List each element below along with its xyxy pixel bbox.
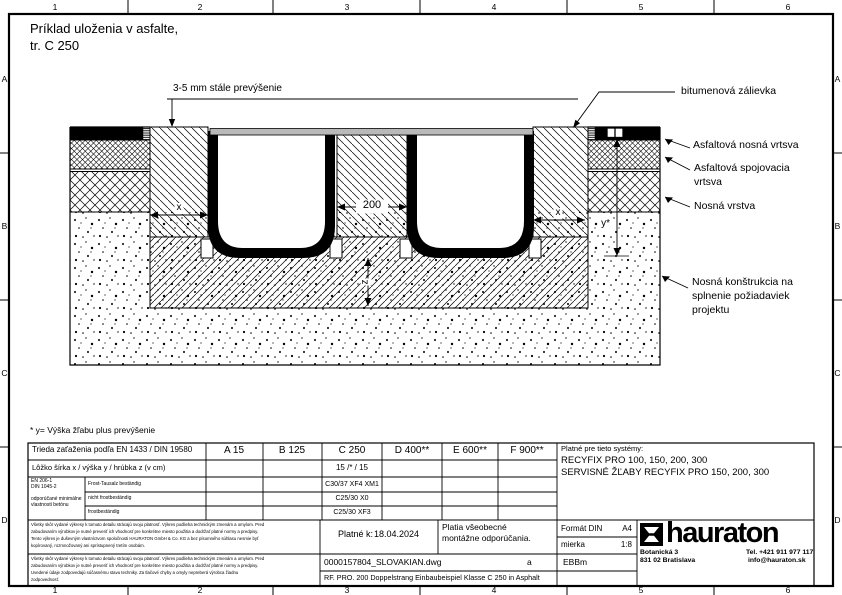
concrete-row-label: Frost-Tausalz beständig — [88, 482, 141, 487]
grid-row-label: B — [835, 221, 841, 231]
grid-row-label: C — [834, 368, 840, 378]
concrete-c250-value: C25/30 X0 — [335, 495, 368, 503]
systems-line2: SERVISNÉ ŽĽABY RECYFIX PRO 150, 200, 300 — [561, 468, 769, 478]
class-e600: E 600** — [453, 446, 487, 457]
label-bitumen-seal: bitumenová zálievka — [681, 86, 776, 97]
hauraton-logo-icon — [640, 523, 663, 546]
label-substructure-line3: projektu — [692, 305, 729, 316]
dim-y-label: y* — [599, 219, 612, 230]
grid-col-label: 3 — [345, 2, 350, 12]
scale-value: 1:8 — [621, 541, 632, 550]
systems-line1: RECYFIX PRO 100, 150, 200, 300 — [561, 456, 707, 466]
label-substructure-line1: Nosná konštrukcia na — [692, 277, 793, 288]
class-b125: B 125 — [279, 446, 305, 457]
valid-date-label: Platné k: — [338, 530, 373, 540]
label-substructure-line2: splnenie požiadaviek — [692, 291, 789, 302]
grid-row-label: A — [2, 74, 8, 84]
grid-row-label: C — [1, 368, 7, 378]
fine-print-line: Uvedené údaje zodpovedajú súčasnému stav… — [31, 571, 238, 576]
page-title-line2: tr. C 250 — [30, 39, 79, 53]
cross-section — [70, 127, 660, 365]
grid-col-label: 2 — [198, 2, 203, 12]
concrete-standard-2: DIN 1045-2 — [31, 485, 57, 490]
page-title-line1: Príklad uloženia v asfalte, — [30, 22, 178, 36]
haunch-middle-hatch — [337, 135, 407, 237]
revision-letter: a — [527, 558, 532, 567]
drawing-description: RF. PRO. 200 Doppelstrang Einbaubeispiel… — [324, 574, 540, 582]
general-note-line1: Platia všeobecné — [442, 523, 507, 532]
concrete-row-label: frostbeständig — [88, 510, 119, 515]
label-asphalt-binder-line2: vrtsva — [694, 177, 722, 188]
label-asphalt-base-course: Asfaltová nosná vrtsva — [693, 140, 799, 151]
pavement-right — [588, 127, 660, 212]
brand-phone: Tel. +421 911 977 117 — [746, 549, 813, 556]
brand-email: info@hauraton.sk — [748, 557, 806, 564]
fine-print-line: zodpovednosť. — [31, 578, 59, 583]
concrete-c250-value: C30/37 XF4 XM1 — [325, 481, 379, 489]
dim-200-label: 200 — [363, 200, 381, 212]
grating-bar — [210, 129, 533, 136]
fine-print-line: kopírovaný, rozmnožovaný ani sprístupnen… — [31, 544, 145, 549]
drawing-sheet: 1 2 3 4 5 6 1 2 3 4 5 6 A B C D A B C D — [0, 0, 842, 595]
fine-print-line: zabudovaním výrobkov je nutné preveriť i… — [31, 530, 258, 535]
concrete-note-2: vlastnosti betónu — [31, 503, 69, 508]
format-label: Formát DIN — [561, 525, 602, 534]
concrete-c250-value: C25/30 XF3 — [333, 509, 370, 517]
haunch-left-hatch — [150, 127, 208, 237]
fine-print-line: Všetky skôr vydané výkresy k tomuto deta… — [31, 523, 264, 528]
grid-col-label: 5 — [639, 2, 644, 12]
brand-address-line1: Botanická 3 — [640, 549, 678, 556]
format-value: A4 — [622, 525, 632, 534]
grid-row-label: D — [1, 515, 7, 525]
fine-print-line: zabudovaním výrobkov je nutné preveriť i… — [31, 564, 258, 569]
class-a15: A 15 — [224, 446, 244, 457]
class-f900: F 900** — [510, 446, 543, 457]
footnote-y-definition: * y= Výška žľabu plus prevýšenie — [30, 426, 155, 435]
fine-print-line: Tento výkres je duševným vlastníctvom sp… — [31, 537, 259, 542]
size-row-label: Lôžko šírka x / výška y / hrúbka z (v cm… — [32, 464, 165, 472]
load-class-row-label: Trieda zaťaženia podľa EN 1433 / DIN 195… — [32, 446, 192, 455]
channel-profile-right — [400, 131, 541, 258]
systems-title: Platné pre tieto systémy: — [561, 445, 643, 453]
class-c250: C 250 — [339, 446, 366, 457]
brand-address-line2: 831 02 Bratislava — [640, 557, 695, 564]
scale-label: mierka — [561, 541, 585, 550]
grid-row-label: A — [835, 74, 841, 84]
general-note-line2: montážne odporúčania. — [442, 534, 531, 543]
grid-col-label: 6 — [786, 2, 791, 12]
grid-row-label: D — [834, 515, 840, 525]
fine-print-line: Všetky skôr vydané výkresy k tomuto deta… — [31, 557, 264, 562]
pavement-left — [70, 127, 150, 212]
label-asphalt-binder-line1: Asfaltová spojovacia — [694, 163, 790, 174]
dim-x-right-label: x — [554, 208, 563, 219]
valid-date-value: 18.04.2024 — [374, 530, 419, 540]
grid-col-label: 4 — [492, 2, 497, 12]
author-initials: EBBm — [563, 558, 587, 567]
file-name: 0000157804_SLOVAKIAN.dwg — [324, 558, 442, 567]
brand-wordmark: hauraton — [666, 518, 778, 549]
class-d400: D 400** — [395, 446, 429, 457]
top-offset-annotation: 3-5 mm stále prevýšenie — [173, 84, 282, 95]
concrete-row-label: nicht frostbeständig — [88, 496, 131, 501]
dim-z-label: z — [361, 279, 372, 286]
grid-col-label: 1 — [53, 2, 58, 12]
label-base-course: Nosná vrstva — [694, 201, 755, 212]
size-c250-value: 15 /* / 15 — [336, 464, 368, 473]
grid-row-label: B — [2, 221, 8, 231]
channel-profile-left — [201, 131, 342, 258]
dim-x-left-label: x — [175, 203, 184, 214]
